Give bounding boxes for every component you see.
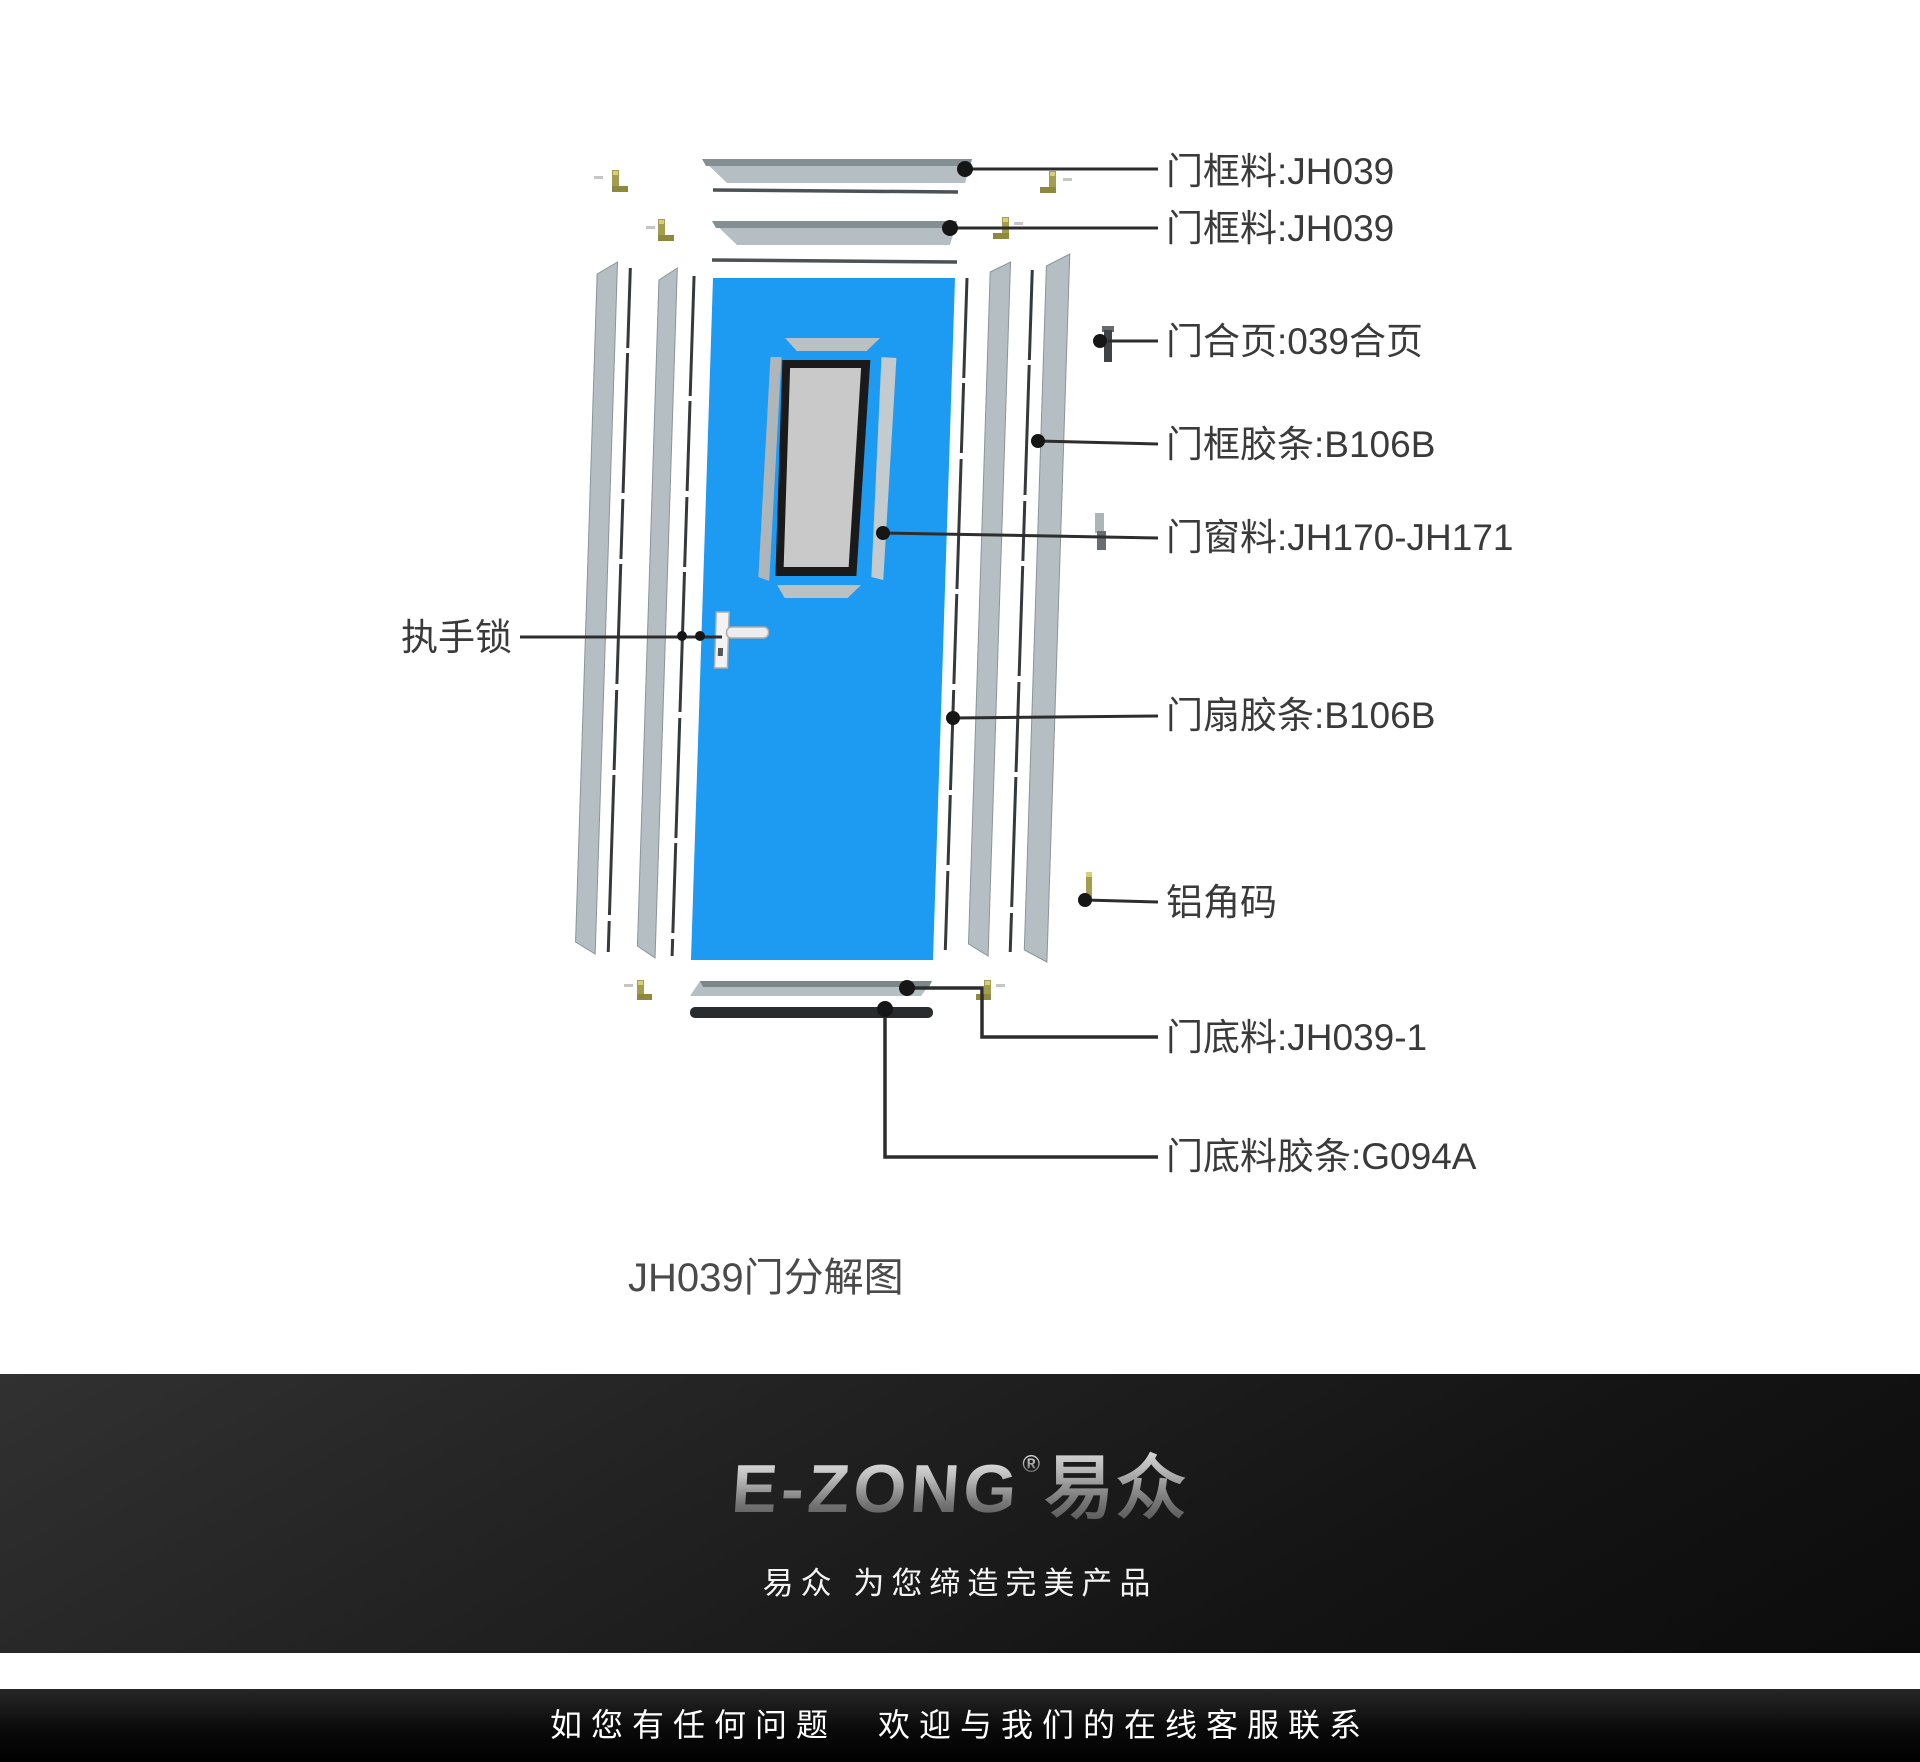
leader-dot (677, 631, 687, 641)
service-bar: 如您有任何问题 欢迎与我们的在线客服联系 (0, 1689, 1920, 1762)
handle-plate (714, 612, 729, 668)
leader-dot (695, 631, 705, 641)
window-profile-icon-lower (1097, 531, 1106, 550)
leader-dot (1093, 334, 1107, 348)
label-bottom-rail: 门底料:JH039-1 (1166, 1017, 1427, 1058)
aluminum-corner-icon-tip (1086, 872, 1092, 877)
leader-dot (876, 526, 890, 540)
handle-lever (726, 627, 768, 638)
left-gasket-strip-inner (672, 276, 694, 956)
leader-bottom-rail (907, 988, 1158, 1037)
label-leaf-gasket: 门扇胶条:B106B (1166, 695, 1435, 736)
leader-dot (899, 980, 915, 996)
door-exploded-svg: 门框料:JH039 门框料:JH039 门合页:039合页 门框胶条:B106B… (0, 0, 1920, 1374)
handle-keyhole (718, 648, 723, 656)
left-jamb-inner (637, 268, 677, 958)
leader-aluminum-corner (1085, 900, 1158, 902)
part-mark (1063, 178, 1072, 181)
divider-gap (0, 1653, 1920, 1689)
leader-leaf-gasket (953, 716, 1158, 718)
top-rail-1-edge (702, 159, 972, 166)
corner-bracket-icon (658, 219, 674, 241)
label-frame-gasket: 门框胶条:B106B (1166, 424, 1435, 465)
label-window-profile: 门窗料:JH170-JH171 (1166, 517, 1514, 558)
label-handle-lock: 执手锁 (401, 617, 512, 658)
brand-tagline: 易众 为您缔造完美产品 (0, 1558, 1920, 1603)
corner-bracket-icon (612, 170, 628, 192)
right-jamb-outer (1024, 254, 1070, 962)
label-frame-rail-2: 门框料:JH039 (1166, 208, 1394, 249)
logo-latin-text: E-ZONG (729, 1450, 1023, 1528)
window-trim-bottom (777, 585, 861, 598)
brand-logo: E-ZONG®易众 (0, 1432, 1920, 1533)
hinge-icon-body (1104, 330, 1112, 362)
logo-cjk-text: 易众 (1044, 1432, 1188, 1533)
leader-dot (957, 161, 973, 177)
part-mark (594, 176, 603, 179)
bottom-gasket-bar (690, 1007, 933, 1018)
label-hinge: 门合页:039合页 (1166, 321, 1423, 362)
part-mark (1014, 222, 1023, 225)
top-gasket-strip-1 (713, 190, 958, 192)
leader-dot (946, 711, 960, 725)
diagram-caption: JH039门分解图 (628, 1256, 904, 1300)
bottom-rail-edge (700, 981, 932, 987)
top-rail-2-edge (712, 221, 957, 228)
part-mark (996, 984, 1005, 987)
label-frame-rail-1: 门框料:JH039 (1166, 151, 1394, 192)
window-profile-icon (1095, 513, 1104, 533)
leader-dot (1078, 893, 1092, 907)
brand-band: E-ZONG®易众 易众 为您缔造完美产品 (0, 1374, 1920, 1653)
leader-dot (1031, 434, 1045, 448)
right-jamb-inner (968, 262, 1010, 956)
top-gasket-strip-2 (712, 260, 957, 262)
part-mark (646, 226, 655, 229)
label-bottom-gasket: 门底料胶条:G094A (1166, 1136, 1477, 1177)
window-glass (784, 368, 861, 567)
door-exploded-diagram: 门框料:JH039 门框料:JH039 门合页:039合页 门框胶条:B106B… (0, 0, 1920, 1374)
window-trim-top (785, 338, 880, 351)
label-aluminum-corner: 铝角码 (1166, 882, 1277, 923)
corner-bracket-icon (637, 980, 652, 1000)
vertical-assembly (575, 254, 1070, 962)
service-text: 如您有任何问题 欢迎与我们的在线客服联系 (550, 1707, 1370, 1743)
page: 门框料:JH039 门框料:JH039 门合页:039合页 门框胶条:B106B… (0, 0, 1920, 1762)
leader-bottom-gasket (885, 1009, 1158, 1157)
leader-dot (877, 1001, 893, 1017)
corner-bracket-icon (1040, 171, 1056, 193)
leader-dot (942, 220, 958, 236)
registered-trademark-icon: ® (1022, 1451, 1040, 1479)
part-mark (624, 984, 633, 987)
